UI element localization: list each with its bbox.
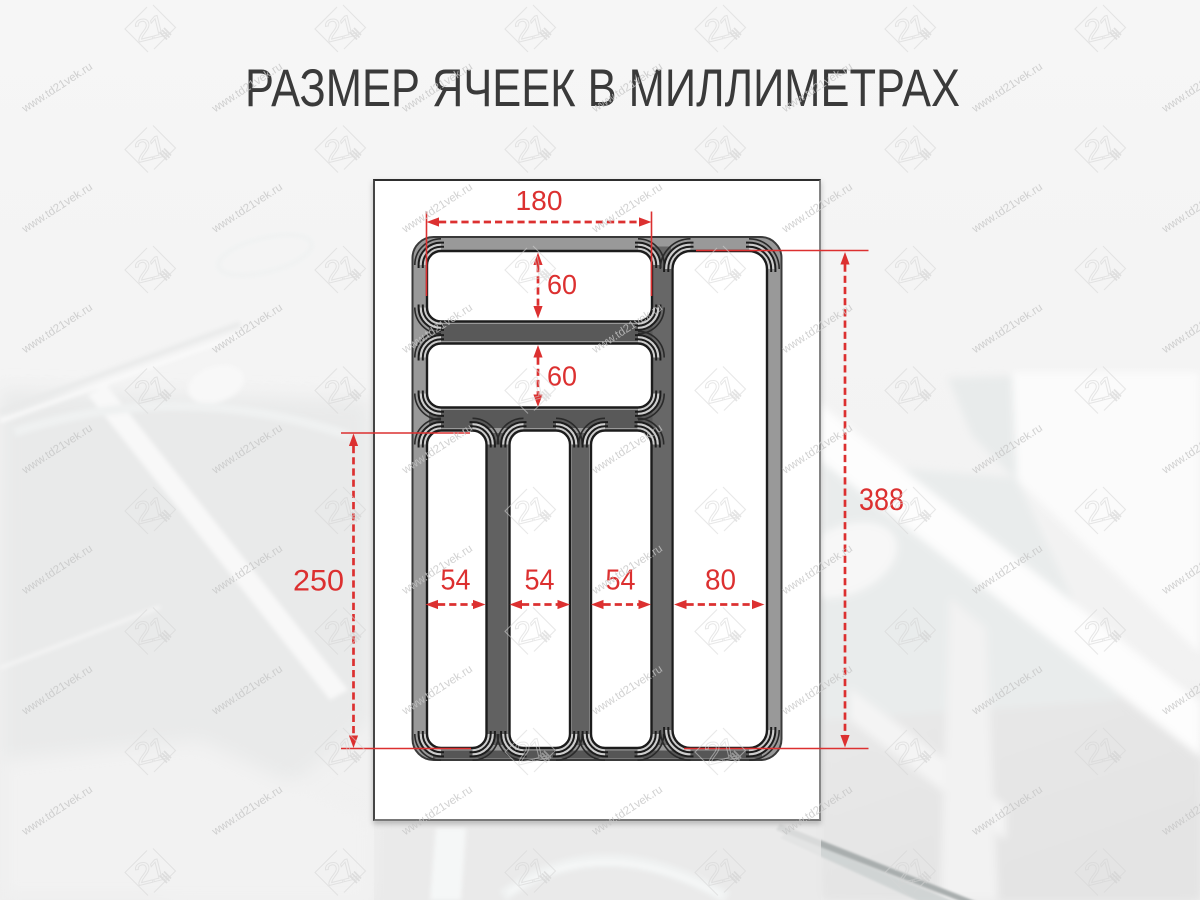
svg-text:180: 180	[516, 185, 563, 216]
svg-text:60: 60	[547, 269, 577, 300]
svg-text:54: 54	[525, 565, 555, 597]
svg-text:60: 60	[547, 361, 577, 392]
svg-text:80: 80	[705, 565, 736, 597]
svg-text:250: 250	[293, 565, 344, 598]
